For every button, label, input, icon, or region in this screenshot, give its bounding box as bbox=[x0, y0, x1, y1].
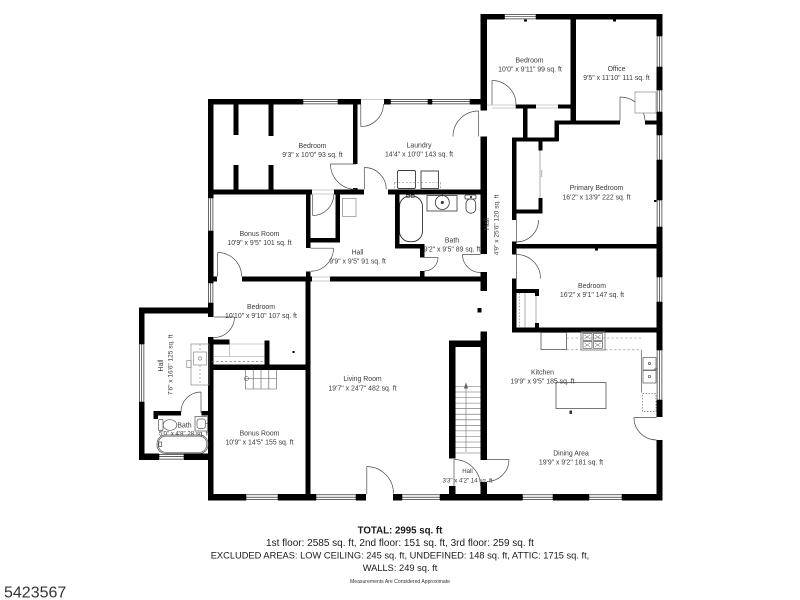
svg-text:Living Room: Living Room bbox=[343, 376, 382, 383]
svg-text:Dining Area: Dining Area bbox=[553, 451, 589, 458]
svg-text:4'9" x 25'6" 120 sq. ft: 4'9" x 25'6" 120 sq. ft bbox=[494, 195, 501, 256]
svg-text:Measurements Are Considered Ap: Measurements Are Considered Approximate bbox=[350, 579, 450, 585]
svg-text:Bedroom: Bedroom bbox=[578, 283, 606, 290]
svg-text:9'5" x 11'10" 111 sq. ft: 9'5" x 11'10" 111 sq. ft bbox=[583, 75, 650, 82]
svg-text:EXCLUDED AREAS: LOW CEILING: 2: EXCLUDED AREAS: LOW CEILING: 245 sq. ft,… bbox=[211, 551, 590, 561]
svg-text:Bedroom: Bedroom bbox=[247, 304, 275, 311]
svg-text:Laundry: Laundry bbox=[407, 143, 432, 150]
svg-text:Office: Office bbox=[608, 66, 626, 73]
svg-text:Bath: Bath bbox=[177, 423, 191, 430]
svg-text:Bonus Room: Bonus Room bbox=[240, 231, 280, 238]
svg-text:Primary Bedroom: Primary Bedroom bbox=[570, 185, 624, 192]
svg-text:9'2" x 9'5" 89 sq. ft: 9'2" x 9'5" 89 sq. ft bbox=[424, 247, 481, 254]
svg-text:5'0" x 4'8" 28 sq. ft: 5'0" x 4'8" 28 sq. ft bbox=[159, 431, 209, 438]
svg-text:7'6" x 16'6" 125 sq. ft: 7'6" x 16'6" 125 sq. ft bbox=[168, 335, 175, 396]
svg-text:9'9" x 9'5" 91 sq. ft: 9'9" x 9'5" 91 sq. ft bbox=[329, 259, 386, 266]
svg-text:10'9" x 14'5" 155 sq. ft: 10'9" x 14'5" 155 sq. ft bbox=[225, 440, 293, 447]
svg-text:19'9" x 9'2" 181 sq. ft: 19'9" x 9'2" 181 sq. ft bbox=[539, 460, 603, 467]
svg-text:19'7" x 24'7" 482 sq. ft: 19'7" x 24'7" 482 sq. ft bbox=[328, 385, 396, 392]
svg-text:10'10" x 9'10" 107 sq. ft: 10'10" x 9'10" 107 sq. ft bbox=[225, 313, 297, 320]
svg-text:Bonus Room: Bonus Room bbox=[240, 431, 280, 438]
svg-text:Bedroom: Bedroom bbox=[299, 143, 327, 150]
svg-text:10'9" x 9'5" 101 sq. ft: 10'9" x 9'5" 101 sq. ft bbox=[227, 240, 291, 247]
svg-text:1st floor: 2585 sq. ft, 2nd fl: 1st floor: 2585 sq. ft, 2nd floor: 151 s… bbox=[266, 538, 534, 549]
svg-text:9'3" x 10'0" 93 sq. ft: 9'3" x 10'0" 93 sq. ft bbox=[282, 152, 342, 159]
svg-text:10'0" x 9'11" 99 sq. ft: 10'0" x 9'11" 99 sq. ft bbox=[498, 67, 562, 74]
svg-text:Hall: Hall bbox=[158, 359, 165, 371]
svg-text:3'3" x 4'2" 14 sq. ft: 3'3" x 4'2" 14 sq. ft bbox=[442, 478, 492, 485]
svg-text:Hall: Hall bbox=[484, 218, 491, 230]
svg-text:14'4" x 10'0" 143 sq. ft: 14'4" x 10'0" 143 sq. ft bbox=[385, 152, 453, 159]
svg-text:WALLS: 249 sq. ft: WALLS: 249 sq. ft bbox=[363, 563, 438, 573]
svg-text:Bath: Bath bbox=[445, 238, 459, 245]
svg-text:Hall: Hall bbox=[462, 468, 473, 475]
svg-text:5423567: 5423567 bbox=[4, 585, 66, 600]
svg-text:16'2" x 9'1" 147 sq. ft: 16'2" x 9'1" 147 sq. ft bbox=[560, 292, 624, 299]
svg-text:19'9" x 9'5" 185 sq. ft: 19'9" x 9'5" 185 sq. ft bbox=[510, 379, 574, 386]
svg-text:TOTAL: 2995 sq. ft: TOTAL: 2995 sq. ft bbox=[358, 526, 443, 537]
svg-text:16'2" x 13'9" 222 sq. ft: 16'2" x 13'9" 222 sq. ft bbox=[562, 194, 630, 201]
svg-text:Kitchen: Kitchen bbox=[531, 370, 554, 377]
svg-text:Bedroom: Bedroom bbox=[516, 58, 544, 65]
svg-text:Hall: Hall bbox=[352, 250, 364, 257]
